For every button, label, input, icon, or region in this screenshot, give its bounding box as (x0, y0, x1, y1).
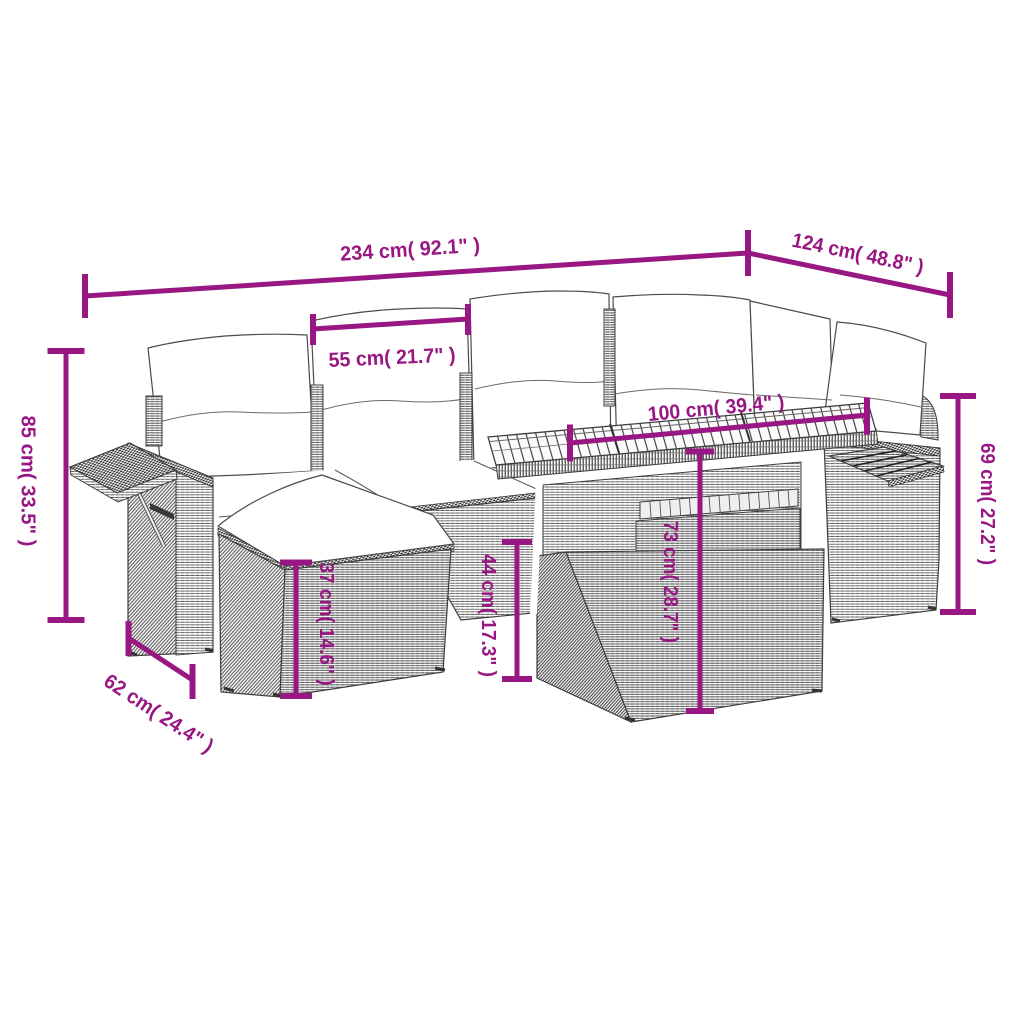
svg-text:44 cm( 17.3" ): 44 cm( 17.3" ) (477, 554, 500, 677)
svg-text:69 cm( 27.2" ): 69 cm( 27.2" ) (976, 443, 999, 565)
svg-text:37 cm( 14.6" ): 37 cm( 14.6" ) (315, 563, 338, 686)
svg-text:73 cm( 28.7" ): 73 cm( 28.7" ) (659, 521, 682, 643)
svg-text:85 cm( 33.5" ): 85 cm( 33.5" ) (16, 416, 39, 547)
